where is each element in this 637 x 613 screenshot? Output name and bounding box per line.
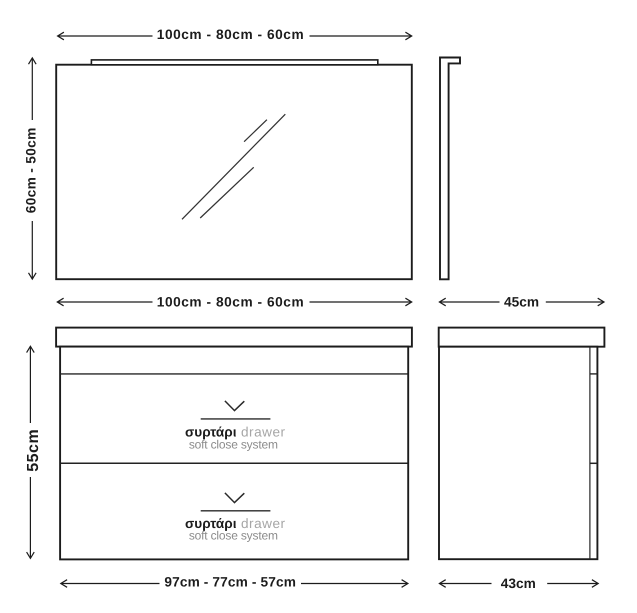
svg-text:100cm - 80cm - 60cm: 100cm - 80cm - 60cm bbox=[157, 27, 304, 42]
svg-text:97cm - 77cm - 57cm: 97cm - 77cm - 57cm bbox=[164, 574, 296, 589]
svg-text:60cm - 50cm: 60cm - 50cm bbox=[24, 127, 39, 213]
svg-text:55cm: 55cm bbox=[25, 429, 42, 472]
svg-text:soft close system: soft close system bbox=[189, 529, 278, 543]
svg-text:45cm: 45cm bbox=[504, 295, 539, 310]
svg-text:100cm - 80cm - 60cm: 100cm - 80cm - 60cm bbox=[157, 295, 304, 310]
svg-text:43cm: 43cm bbox=[501, 576, 536, 591]
svg-text:soft close system: soft close system bbox=[189, 438, 278, 452]
